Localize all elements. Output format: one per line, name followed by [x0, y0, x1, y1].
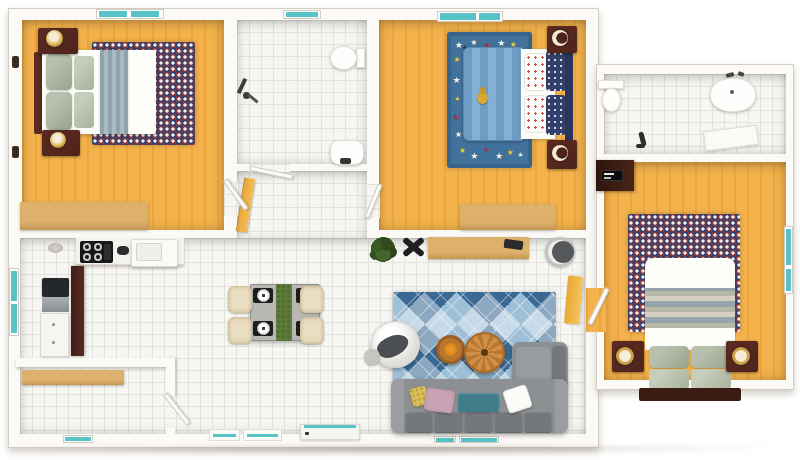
fridge-front	[42, 297, 69, 312]
living-window-large-pane	[461, 438, 497, 442]
bed1-lamp-top	[46, 30, 63, 47]
bed3-pillow-2	[691, 346, 731, 368]
bed3-headboard	[639, 388, 741, 401]
sofa-arm-left	[391, 379, 404, 433]
laundry-wall-right-upper	[166, 358, 175, 396]
laundry-window-pane	[65, 437, 91, 441]
annex-sink-drain	[730, 90, 734, 94]
bed1-pillow-2	[46, 92, 72, 130]
coffee-table-large-center	[481, 349, 488, 356]
dining-chair-4	[300, 317, 324, 344]
cabinet-knob-2	[52, 341, 55, 344]
wall-sconce-2	[12, 146, 19, 158]
dining-chair-1	[228, 286, 252, 313]
bed1-pillow-4	[74, 92, 94, 128]
kitchen-ceiling-lamp	[48, 243, 63, 253]
bed3-lamp-left	[616, 347, 634, 365]
bed3-pillow-1	[649, 346, 689, 368]
sofa-back-cushion-3	[464, 411, 493, 432]
sofa-back-cushion-2	[434, 411, 463, 432]
doormat-2-stripe	[247, 434, 278, 437]
stove-burner-2	[94, 243, 102, 251]
kitchen-window-pane-lower	[11, 304, 17, 333]
rug-star-icon: ★	[455, 131, 462, 139]
bed1-runner	[100, 50, 128, 134]
laundry-shelf	[22, 370, 124, 385]
bed2-pillow-navy-2	[546, 95, 566, 135]
tv	[601, 170, 623, 181]
cushion-teal	[458, 393, 499, 412]
bedroom2-dresser	[460, 204, 556, 230]
x-stool	[401, 236, 426, 258]
bathroom1-window-pane	[286, 12, 318, 17]
bed3-lamp-right	[732, 347, 750, 365]
plate-3	[257, 322, 270, 335]
dining-chair-3	[228, 317, 252, 344]
rug-star-icon: ★	[495, 152, 503, 161]
annex-window-pane-upper	[786, 229, 791, 265]
doormat-1-stripe	[213, 434, 236, 437]
entry-door-teal-edge	[304, 425, 356, 428]
stove-panel	[104, 244, 111, 260]
annex-sink	[710, 78, 756, 112]
laundry-wall-top	[16, 358, 174, 367]
toilet2-bowl	[602, 88, 621, 112]
tv-screen-mark-2	[604, 177, 611, 179]
hallway-floor	[237, 171, 367, 241]
bed2-headboard	[565, 45, 573, 143]
annex-window-pane-lower	[786, 269, 791, 291]
cabinet-knob-1	[52, 323, 55, 326]
bed1-pillow-3	[74, 56, 94, 90]
kitchen-window-pane-upper	[11, 271, 17, 301]
bed1-pillow-1	[46, 54, 72, 90]
sofa-back-cushion-1	[405, 411, 433, 432]
toilet1-bowl	[330, 46, 357, 70]
kitchen-base-cabinet	[40, 313, 69, 357]
floor-plan: ★★★★★★★★★★★★★★★★★★	[0, 0, 800, 460]
dining-chair-2	[300, 286, 324, 313]
bathroom1-sink-faucet	[340, 158, 351, 164]
bed2-blanket	[463, 47, 523, 141]
kitchen-sink-basin	[136, 243, 162, 261]
rug-star-icon: ★	[470, 152, 478, 161]
bed2-lamp-top	[552, 30, 568, 46]
table-runner	[276, 284, 292, 341]
sofa-back-cushion-4	[494, 411, 523, 432]
rug-star-icon: ★	[483, 147, 489, 154]
sofa-arm-right	[555, 379, 568, 433]
plate-1	[257, 289, 270, 302]
bed3-pillow-4	[691, 369, 731, 389]
rug-star-icon: ★	[459, 147, 466, 155]
entry-door-handle	[305, 432, 309, 435]
teddy-bear-head	[479, 87, 486, 94]
bed1-lamp-bottom	[50, 132, 66, 148]
bed3-fold	[645, 258, 735, 288]
round-bin-inner	[552, 241, 574, 263]
bedroom1-window-pane-right	[131, 11, 159, 17]
fridge-top	[42, 278, 69, 297]
stove-burner-1	[83, 243, 91, 251]
annex-floor-faucet-base	[636, 144, 645, 148]
pillow-pink	[424, 387, 456, 414]
bedroom1-window-pane-left	[99, 11, 127, 17]
bed2-lamp-bottom	[552, 145, 568, 161]
stove-burner-3	[83, 253, 91, 261]
wall-sconce-1	[12, 56, 19, 68]
bed2-pillow-navy-1	[546, 51, 566, 91]
bedroom1-dresser	[20, 202, 148, 230]
rug-star-icon: ★	[506, 149, 513, 157]
bed2-pillow-white-2	[524, 95, 548, 133]
bedroom2-window-pane-right	[479, 13, 500, 20]
armchair-ottoman	[364, 349, 380, 365]
rug-star-icon: ★	[453, 56, 460, 64]
ground-shadow	[12, 446, 788, 455]
rug-star-icon: ★	[517, 152, 523, 159]
stove-burner-4	[94, 253, 102, 261]
kettle	[117, 246, 129, 255]
rug-star-icon: ★	[453, 114, 460, 122]
coffee-table-small-bowl	[444, 343, 457, 356]
rug-star-icon: ★	[454, 96, 460, 103]
laundry-wall-right-lower	[166, 428, 175, 434]
toilet1-tank	[356, 48, 365, 68]
bedroom2-window-pane-left	[440, 13, 476, 20]
sofa-back-cushion-5	[524, 411, 552, 432]
living-window-small-pane	[436, 438, 454, 442]
bed2-pillow-white-1	[524, 53, 548, 91]
potted-plant	[368, 236, 398, 263]
sofa-chaise-seat	[516, 347, 550, 383]
pantry-cabinet	[71, 266, 84, 356]
tv-screen-mark-1	[604, 173, 614, 175]
rug-star-icon: ★	[470, 39, 477, 47]
bed3-pillow-3	[649, 369, 689, 389]
bed1-headboard	[34, 52, 42, 134]
rug-star-icon: ★	[453, 76, 461, 85]
bed3-striped-duvet	[645, 288, 735, 328]
